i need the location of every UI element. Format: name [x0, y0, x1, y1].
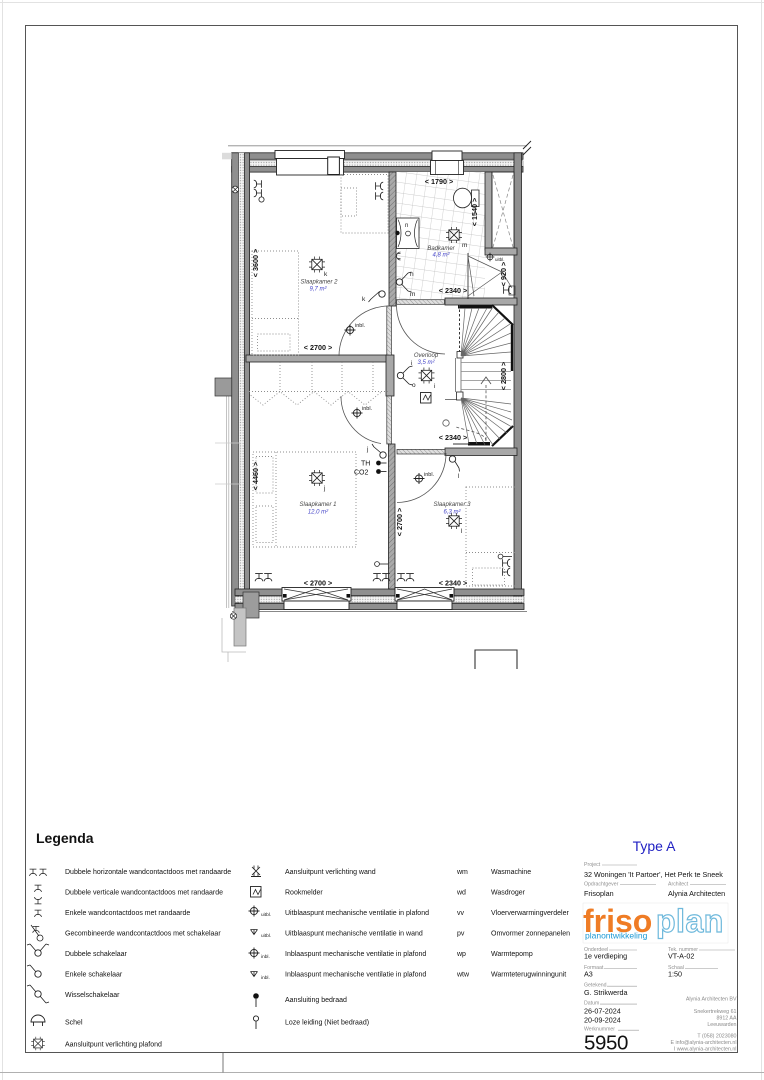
svg-text:Warmtepomp: Warmtepomp — [491, 951, 533, 958]
svg-text:A3: A3 — [584, 970, 593, 979]
svg-text:Warmteterugwinningunit: Warmteterugwinningunit — [491, 972, 566, 979]
svg-text:i: i — [434, 383, 435, 390]
svg-text:I www.alynia-architecten.nl: I www.alynia-architecten.nl — [674, 1047, 737, 1053]
svg-text:1:50: 1:50 — [668, 970, 682, 979]
svg-text:Type A: Type A — [633, 838, 676, 854]
svg-text:< 2700 >: < 2700 > — [395, 508, 404, 536]
svg-text:T (058) 2023080: T (058) 2023080 — [697, 1034, 736, 1040]
svg-text:Dubbele verticale wandcontactd: Dubbele verticale wandcontactdoos met ra… — [65, 890, 223, 897]
svg-text:Inblaaspunt mechanische ventil: Inblaaspunt mechanische ventilatie in pl… — [285, 972, 426, 979]
svg-text:Enkele wandcontactdoos met ran: Enkele wandcontactdoos met randaarde — [65, 910, 190, 917]
svg-text:< 920 >: < 920 > — [499, 262, 508, 286]
svg-text:G. Strikwerda: G. Strikwerda — [584, 988, 628, 997]
svg-text:inbl.: inbl. — [424, 472, 435, 478]
svg-text:Dubbele horizontale wandcontac: Dubbele horizontale wandcontactdoos met … — [65, 869, 231, 876]
svg-text:uitbl.: uitbl. — [495, 257, 505, 262]
svg-text:inbl.: inbl. — [355, 323, 366, 329]
svg-text:32 Woningen 'It Partoer', Het: 32 Woningen 'It Partoer', Het Perk te Sn… — [584, 870, 723, 879]
svg-text:Vloerverwarmingverdeler: Vloerverwarmingverdeler — [491, 910, 569, 917]
svg-text:m: m — [462, 242, 467, 249]
svg-text:Overloop: Overloop — [414, 353, 439, 359]
svg-text:n: n — [410, 271, 414, 278]
svg-text:Uitblaaspunt mechanische venti: Uitblaaspunt mechanische ventilatie in p… — [285, 910, 429, 917]
svg-text:VT-A-02: VT-A-02 — [668, 952, 694, 961]
svg-text:vv: vv — [457, 910, 465, 917]
svg-text:Leeuwarden: Leeuwarden — [707, 1022, 736, 1028]
svg-text:12,0 m²: 12,0 m² — [308, 510, 329, 516]
svg-text:< 2800 >: < 2800 > — [499, 362, 508, 390]
svg-text:E info@alynia-architecten.nl: E info@alynia-architecten.nl — [670, 1040, 736, 1046]
svg-text:wtw: wtw — [456, 972, 470, 979]
svg-text:Legenda: Legenda — [36, 830, 94, 846]
svg-text:Architect: Architect — [668, 882, 689, 888]
svg-text:Wasdroger: Wasdroger — [491, 890, 526, 897]
svg-text:inbl.: inbl. — [362, 406, 373, 412]
svg-text:26-07-2024: 26-07-2024 — [584, 1007, 621, 1016]
svg-text:Schel: Schel — [65, 1020, 83, 1027]
svg-text:< 1540 >: < 1540 > — [470, 198, 479, 226]
svg-text:Enkele schakelaar: Enkele schakelaar — [65, 972, 123, 979]
svg-text:Rookmelder: Rookmelder — [285, 890, 323, 897]
svg-text:inbl.: inbl. — [261, 954, 270, 960]
svg-text:1e verdieping: 1e verdieping — [584, 952, 627, 961]
svg-text:pv: pv — [457, 931, 465, 938]
svg-text:Wisselschakelaar: Wisselschakelaar — [65, 992, 120, 999]
svg-text:Slaapkamer 3: Slaapkamer 3 — [433, 502, 471, 508]
svg-text:o: o — [412, 382, 416, 389]
svg-text:j: j — [366, 446, 368, 453]
svg-text:m: m — [410, 291, 415, 298]
svg-text:Gecombineerde wandcontactdoos: Gecombineerde wandcontactdoos met schake… — [65, 931, 221, 938]
svg-text:wd: wd — [456, 890, 466, 897]
svg-text:< 2340 >: < 2340 > — [439, 286, 467, 295]
svg-text:Uitblaaspunt mechanische venti: Uitblaaspunt mechanische ventilatie in w… — [285, 931, 423, 938]
svg-text:Alynia Architecten: Alynia Architecten — [668, 889, 725, 898]
svg-text:< 2700 >: < 2700 > — [304, 343, 332, 352]
svg-text:Wasmachine: Wasmachine — [491, 869, 531, 876]
svg-text:CO2: CO2 — [354, 470, 369, 477]
svg-text:Inblaaspunt mechanische ventil: Inblaaspunt mechanische ventilatie in pl… — [285, 951, 426, 958]
svg-text:TH: TH — [361, 461, 370, 468]
svg-text:8912 AA: 8912 AA — [716, 1015, 736, 1021]
svg-text:Aansluitpunt verlichting wand: Aansluitpunt verlichting wand — [285, 869, 376, 876]
svg-text:< 1790 >: < 1790 > — [425, 177, 453, 186]
svg-text:4,8 m²: 4,8 m² — [432, 253, 450, 259]
svg-text:n: n — [405, 223, 408, 229]
svg-text:Project: Project — [584, 862, 601, 868]
svg-text:Slaapkamer 1: Slaapkamer 1 — [299, 502, 336, 508]
svg-text:planontwikkeling: planontwikkeling — [585, 931, 648, 941]
svg-text:Aansluiting bedraad: Aansluiting bedraad — [285, 997, 347, 1004]
svg-text:Omvormer zonnepanelen: Omvormer zonnepanelen — [491, 931, 570, 938]
svg-text:Alynia Architecten BV: Alynia Architecten BV — [686, 997, 737, 1003]
svg-text:j: j — [323, 485, 325, 492]
svg-text:inbl.: inbl. — [261, 975, 270, 981]
svg-text:< 2340 >: < 2340 > — [439, 433, 467, 442]
svg-text:Loze leiding (Niet bedraad): Loze leiding (Niet bedraad) — [285, 1020, 369, 1027]
svg-text:Badkamer: Badkamer — [427, 246, 455, 252]
svg-text:uitbl.: uitbl. — [261, 933, 271, 939]
svg-text:plan: plan — [656, 903, 724, 939]
svg-text:Aansluitpunt verlichting plafo: Aansluitpunt verlichting plafond — [65, 1042, 162, 1049]
svg-text:5950: 5950 — [584, 1032, 628, 1055]
svg-text:wp: wp — [456, 951, 466, 958]
svg-text:< 2700 >: < 2700 > — [304, 579, 332, 588]
svg-text:Opdrachtgever: Opdrachtgever — [584, 882, 619, 888]
svg-text:9,7 m²: 9,7 m² — [309, 287, 327, 293]
svg-text:< 2340 >: < 2340 > — [439, 579, 467, 588]
svg-text:< 3600 >: < 3600 > — [251, 249, 260, 277]
svg-text:wm: wm — [456, 869, 468, 876]
svg-text:Snekertrekweg 61: Snekertrekweg 61 — [694, 1009, 737, 1015]
svg-text:20-09-2024: 20-09-2024 — [584, 1016, 621, 1025]
svg-text:< 4460 >: < 4460 > — [251, 462, 260, 490]
svg-text:Slaapkamer 2: Slaapkamer 2 — [300, 280, 338, 286]
svg-text:i: i — [411, 360, 412, 367]
svg-text:Frisoplan: Frisoplan — [584, 889, 614, 898]
svg-text:Dubbele schakelaar: Dubbele schakelaar — [65, 951, 128, 958]
svg-text:uitbl.: uitbl. — [261, 912, 271, 918]
svg-text:6,3 m²: 6,3 m² — [443, 510, 461, 516]
svg-text:3,5 m²: 3,5 m² — [417, 360, 435, 366]
